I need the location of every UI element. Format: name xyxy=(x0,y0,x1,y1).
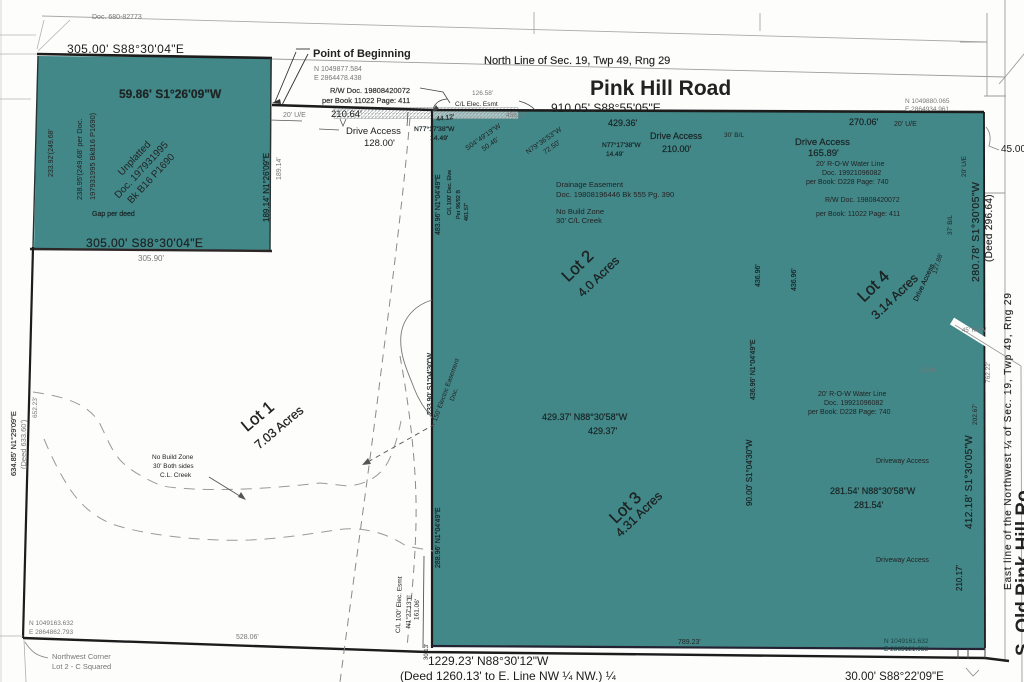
svg-text:20' U/E: 20' U/E xyxy=(283,112,306,119)
svg-text:R/W Doc. 19808420072: R/W Doc. 19808420072 xyxy=(825,197,900,204)
svg-text:161.06': 161.06' xyxy=(413,599,421,620)
svg-text:128.00': 128.00' xyxy=(364,138,395,149)
svg-text:233.92'(249.68': 233.92'(249.68' xyxy=(48,129,55,177)
svg-text:238.95'(249.68' per Doc.: 238.95'(249.68' per Doc. xyxy=(75,118,84,200)
svg-text:202.67': 202.67' xyxy=(972,404,979,425)
svg-text:436.96' N1°04'49"E: 436.96' N1°04'49"E xyxy=(749,339,757,400)
svg-text:per Book: D228 Page: 740: per Book: D228 Page: 740 xyxy=(808,409,891,416)
svg-text:N 1049877.584: N 1049877.584 xyxy=(314,66,362,73)
svg-text:Northwest Corner: Northwest Corner xyxy=(52,652,111,661)
svg-text:288.96' N1°04'49"E: 288.96' N1°04'49"E xyxy=(434,507,442,568)
svg-text:N1°27'13"E: N1°27'13"E xyxy=(404,594,413,628)
svg-text:Lot 2 - C Squared: Lot 2 - C Squared xyxy=(52,662,111,671)
svg-text:N 1049163.632: N 1049163.632 xyxy=(29,620,74,627)
svg-text:429.37' N88°30'58"W: 429.37' N88°30'58"W xyxy=(542,412,628,422)
svg-text:280.78' S1°30'05"W: 280.78' S1°30'05"W xyxy=(970,182,982,282)
svg-text:N77°17'38"W: N77°17'38"W xyxy=(602,141,642,149)
svg-text:Pink Hill Road: Pink Hill Road xyxy=(590,77,731,100)
svg-text:305.90': 305.90' xyxy=(138,254,164,263)
svg-text:Driveway Access: Driveway Access xyxy=(876,557,929,564)
svg-text:429.36': 429.36' xyxy=(608,118,638,128)
svg-text:412.18' S1°30'05"W: 412.18' S1°30'05"W xyxy=(964,435,975,529)
svg-text:197931995 Bk816 P1690): 197931995 Bk816 P1690) xyxy=(88,112,97,200)
svg-text:528.06': 528.06' xyxy=(236,634,259,641)
svg-text:30.00' S88°22'09"E: 30.00' S88°22'09"E xyxy=(845,671,944,682)
svg-text:Per 96/92 B: Per 96/92 B xyxy=(456,190,462,219)
svg-text:483.96' N1°04'49"E: 483.96' N1°04'49"E xyxy=(434,174,442,235)
svg-text:189.14': 189.14' xyxy=(276,157,283,180)
svg-text:189.14' N1°26'09"E: 189.14' N1°26'09"E xyxy=(262,153,271,222)
svg-text:E 2865121.938: E 2865121.938 xyxy=(884,646,928,653)
svg-text:(Deed 296.64): (Deed 296.64) xyxy=(984,194,995,262)
svg-text:59.86' S1°26'09"W: 59.86' S1°26'09"W xyxy=(119,87,222,101)
svg-text:N 1049880.065: N 1049880.065 xyxy=(905,98,950,105)
svg-text:(Deed 633.60'): (Deed 633.60') xyxy=(19,419,28,469)
svg-text:North Line of Sec. 19, Twp 49,: North Line of Sec. 19, Twp 49, Rng 29 xyxy=(484,55,670,67)
svg-text:per Book 11022 Page: 411: per Book 11022 Page: 411 xyxy=(322,96,410,105)
svg-text:30' B/L: 30' B/L xyxy=(724,132,744,139)
svg-text:30' Both sides: 30' Both sides xyxy=(153,463,194,470)
svg-text:305.00' S88°30'04"E: 305.00' S88°30'04"E xyxy=(67,42,184,56)
svg-text:No Build Zone: No Build Zone xyxy=(556,207,604,216)
svg-text:210.00': 210.00' xyxy=(662,144,692,154)
svg-text:90.00' S1°04'30"W: 90.00' S1°04'30"W xyxy=(745,439,754,506)
svg-text:Doc. 19921096082: Doc. 19921096082 xyxy=(824,400,883,407)
svg-text:436.96': 436.96' xyxy=(755,264,762,287)
svg-text:15.88': 15.88' xyxy=(920,368,936,374)
svg-text:Drive Access: Drive Access xyxy=(795,137,850,148)
svg-text:270.06': 270.06' xyxy=(849,117,879,127)
svg-text:Doc. 19808196446 Bk 555 Pg. 39: Doc. 19808196446 Bk 555 Pg. 390 xyxy=(556,190,674,199)
svg-text:165.89': 165.89' xyxy=(808,148,839,159)
svg-text:Gap per deed: Gap per deed xyxy=(92,211,135,218)
svg-text:E 2864478.438: E 2864478.438 xyxy=(314,75,362,82)
svg-text:281.54' N88°30'58"W: 281.54' N88°30'58"W xyxy=(830,486,916,496)
svg-text:461.57': 461.57' xyxy=(464,203,470,221)
svg-text:E 2864862.793: E 2864862.793 xyxy=(29,629,73,636)
svg-text:14.49': 14.49' xyxy=(606,151,624,158)
svg-text:Drive Access: Drive Access xyxy=(650,131,703,141)
svg-text:S. Old Pink Hill Ro: S. Old Pink Hill Ro xyxy=(1013,490,1024,656)
svg-text:(Deed 1260.13' to E. Line NW ¼: (Deed 1260.13' to E. Line NW ¼ NW.) ¼ xyxy=(400,669,617,682)
svg-text:Doc. 19921096082: Doc. 19921096082 xyxy=(822,170,881,177)
svg-text:E 2864934.961: E 2864934.961 xyxy=(905,106,949,113)
svg-text:N77°17'38"W: N77°17'38"W xyxy=(414,125,455,133)
svg-text:No Build Zone: No Build Zone xyxy=(152,454,194,461)
svg-text:20' R-O-W Water Line: 20' R-O-W Water Line xyxy=(816,161,884,168)
svg-text:30' C/L Creek: 30' C/L Creek xyxy=(556,216,602,225)
svg-text:Drainage Easement: Drainage Easement xyxy=(556,180,624,189)
svg-text:45' ROW: 45' ROW xyxy=(962,328,986,334)
svg-text:Point of Beginning: Point of Beginning xyxy=(313,48,411,60)
svg-text:910.05' S88°55'05"E: 910.05' S88°55'05"E xyxy=(551,101,661,115)
svg-text:N 1049161.632: N 1049161.632 xyxy=(884,638,929,645)
svg-text:per Book: 11022 Page: 411: per Book: 11022 Page: 411 xyxy=(816,211,900,218)
svg-text:per Book: D228 Page: 740: per Book: D228 Page: 740 xyxy=(806,179,889,186)
svg-text:634.85' N1°29'09"E: 634.85' N1°29'09"E xyxy=(9,411,18,476)
svg-text:14.49': 14.49' xyxy=(430,135,448,142)
svg-text:305.00' S88°30'04"E: 305.00' S88°30'04"E xyxy=(86,236,203,250)
svg-text:37' B/L: 37' B/L xyxy=(947,215,954,235)
svg-text:789.23': 789.23' xyxy=(678,639,701,646)
svg-text:Driveway Access: Driveway Access xyxy=(876,458,929,465)
svg-text:436.96': 436.96' xyxy=(791,268,798,291)
svg-text:R/W Doc. 19808420072: R/W Doc. 19808420072 xyxy=(330,86,410,95)
svg-text:Doc. 680-82773: Doc. 680-82773 xyxy=(92,14,142,21)
svg-text:20' R-O-W Water Line: 20' R-O-W Water Line xyxy=(818,391,886,398)
svg-text:20' U/E: 20' U/E xyxy=(894,121,917,128)
svg-text:762.22': 762.22' xyxy=(985,362,992,383)
svg-text:652.23': 652.23' xyxy=(32,397,39,418)
svg-text:1229.23' N88°30'12"W: 1229.23' N88°30'12"W xyxy=(428,654,549,668)
svg-text:C/L Elec. Esmt: C/L Elec. Esmt xyxy=(455,101,498,108)
svg-text:C.L. Creek: C.L. Creek xyxy=(160,472,192,479)
svg-text:C/L 100' Dec. Elve: C/L 100' Dec. Elve xyxy=(447,170,453,215)
svg-text:210.17': 210.17' xyxy=(955,565,964,591)
svg-text:233.90' S1°04'30"W: 233.90' S1°04'30"W xyxy=(426,353,434,415)
svg-text:126.58': 126.58' xyxy=(472,90,493,97)
svg-text:Drive Access: Drive Access xyxy=(346,126,401,137)
svg-text:429.37': 429.37' xyxy=(588,426,618,436)
svg-text:456.00': 456.00' xyxy=(506,112,527,119)
svg-text:281.54': 281.54' xyxy=(854,500,884,510)
svg-text:210.64': 210.64' xyxy=(331,109,362,120)
svg-text:45.00': 45.00' xyxy=(1001,144,1024,155)
svg-text:20' U/E: 20' U/E xyxy=(961,155,968,177)
